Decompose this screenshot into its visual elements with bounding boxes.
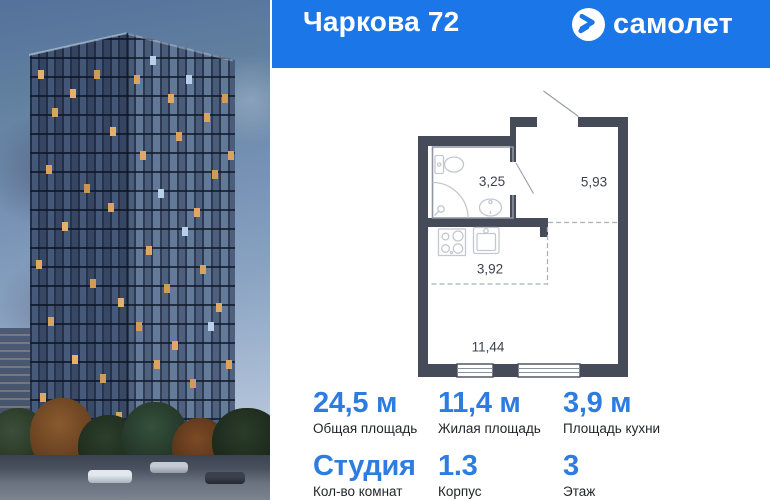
stat-value: 24,5 м [313, 388, 438, 418]
brand-name: самолет [613, 7, 733, 41]
bathroom-area-label: 3,25 [479, 174, 505, 189]
stat-label: Корпус [438, 484, 563, 500]
stat-floor: 3 Этаж [563, 451, 688, 500]
header-bar: Чаркова 72 самолет [272, 0, 770, 68]
samolet-logo-icon [572, 8, 605, 41]
stat-building: 1.3 Корпус [438, 451, 563, 500]
stat-label: Общая площадь [313, 421, 438, 437]
stat-value: 3 [563, 451, 688, 481]
car [88, 470, 132, 483]
kitchen-sink-icon [474, 228, 500, 254]
stat-total-area: 24,5 м Общая площадь [313, 388, 438, 437]
floor-plan: 3,25 5,93 3,92 11,44 [400, 80, 640, 385]
apartment-listing-card: Чаркова 72 самолет [0, 0, 770, 500]
sink-icon [480, 199, 502, 216]
stat-value: Студия [313, 451, 438, 481]
stat-label: Площадь кухни [563, 421, 688, 437]
stove-icon [439, 229, 466, 256]
stat-value: 11,4 м [438, 388, 563, 418]
kitchen-area-label: 3,92 [477, 262, 503, 277]
bathroom-door-swing [516, 163, 534, 194]
lit-windows [0, 0, 6, 9]
tower-corner-edge [127, 33, 129, 458]
stat-label: Жилая площадь [438, 421, 563, 437]
hallway-area-label: 5,93 [581, 175, 607, 190]
brand-logo: самолет [572, 6, 733, 42]
building-photo [0, 0, 270, 500]
shower-icon [433, 183, 469, 219]
living-room-area-label: 11,44 [472, 340, 505, 355]
car [150, 462, 188, 473]
entrance-door-swing [544, 91, 579, 117]
stat-value: 1.3 [438, 451, 563, 481]
window [518, 364, 580, 377]
stat-rooms: Студия Кол-во комнат [313, 451, 438, 500]
stat-value: 3,9 м [563, 388, 688, 418]
stat-label: Кол-во комнат [313, 484, 438, 500]
stats-grid: 24,5 м Общая площадь 11,4 м Жилая площад… [272, 380, 770, 500]
stat-label: Этаж [563, 484, 688, 500]
stat-kitchen-area: 3,9 м Площадь кухни [563, 388, 688, 437]
toilet-icon [435, 156, 464, 174]
stat-living-area: 11,4 м Жилая площадь [438, 388, 563, 437]
window [457, 364, 493, 377]
car [205, 472, 245, 484]
project-title: Чаркова 72 [303, 5, 459, 39]
